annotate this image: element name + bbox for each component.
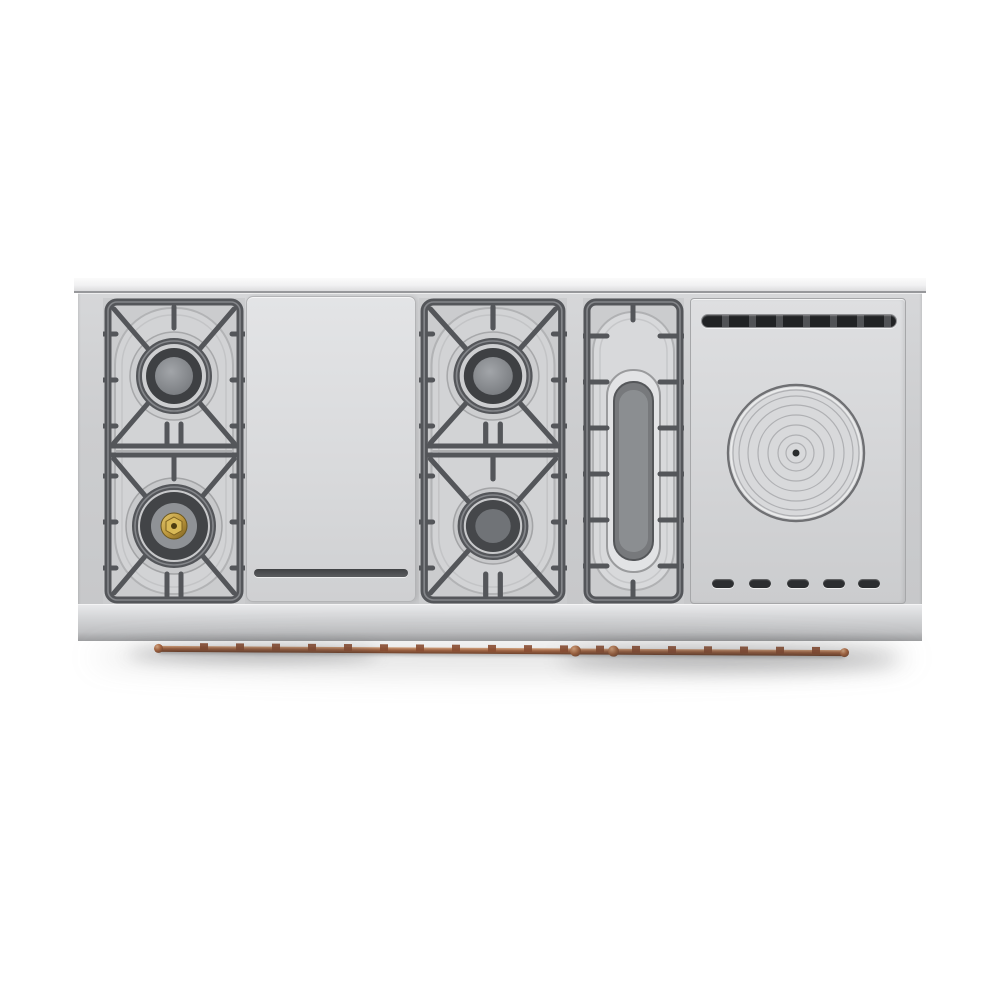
- french-top-front-slot: [749, 579, 771, 588]
- french-top-front-slot: [858, 579, 880, 588]
- griddle-front-groove: [254, 569, 408, 577]
- french-top-ring-disc: [716, 373, 876, 533]
- oval-burner-section: [583, 298, 684, 604]
- french-top-front-slot: [787, 579, 809, 588]
- left-burner-grate-svg: [103, 298, 245, 604]
- drop-shadow: [560, 648, 900, 670]
- french-top-plate: [690, 298, 906, 604]
- middle-burner-section: [419, 298, 567, 604]
- range-rear-trim: [74, 277, 926, 293]
- product-photo-stage: [0, 0, 1000, 1000]
- drop-shadow: [128, 646, 378, 662]
- griddle-plate: [246, 296, 416, 602]
- left-burner-section: [103, 298, 245, 604]
- french-top-vent-slot: [701, 314, 897, 328]
- range-front-band: [78, 604, 922, 641]
- french-top-front-slot: [823, 579, 845, 588]
- middle-burner-grate-svg: [419, 298, 567, 604]
- french-top-front-slot: [712, 579, 734, 588]
- oval-burner-grate-svg: [583, 298, 684, 604]
- range-cooktop-body: [78, 293, 922, 641]
